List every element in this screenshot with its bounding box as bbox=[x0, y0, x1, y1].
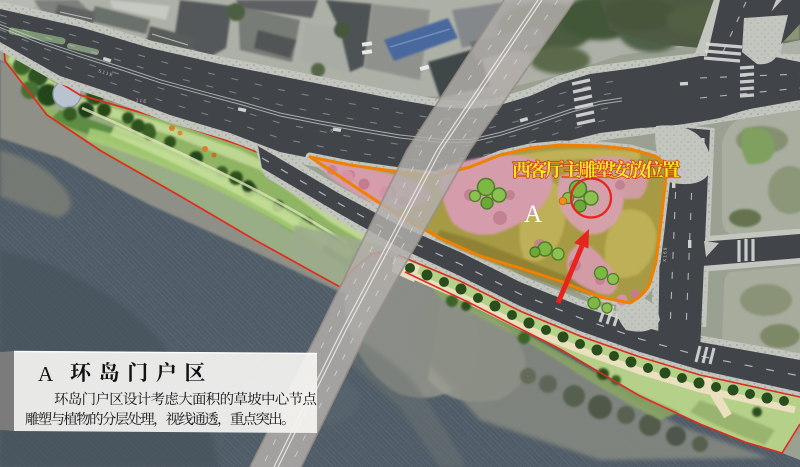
svg-text:A: A bbox=[524, 201, 542, 228]
svg-text:X 1 6 8: X 1 6 8 bbox=[662, 247, 668, 262]
svg-text:A: A bbox=[38, 362, 54, 386]
